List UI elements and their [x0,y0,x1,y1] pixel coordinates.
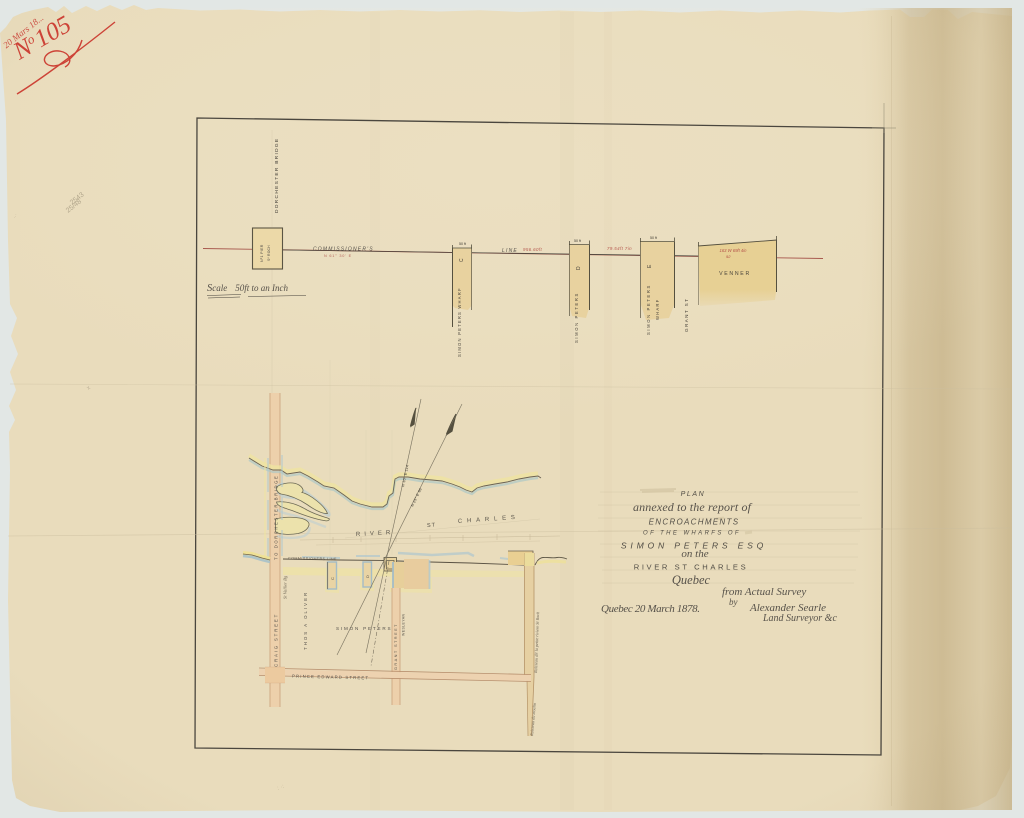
svg-text:St Vallier Bg: St Vallier Bg [283,575,288,599]
svg-text:THOS A OLIVER: THOS A OLIVER [303,591,308,650]
svg-text:PLAN: PLAN [681,491,706,498]
svg-text:Sº ROCH: Sº ROCH [267,245,271,261]
svg-text:ST: ST [427,523,436,529]
svg-text:Land Surveyor &c: Land Surveyor &c [762,613,837,624]
svg-text:WESLEYAN: WESLEYAN [402,614,406,636]
svg-text:N 61° 30' E: N 61° 30' E [324,254,352,258]
svg-text:SIMON PETERS WHARF: SIMON PETERS WHARF [457,287,462,357]
svg-text:WHARF: WHARF [655,299,660,320]
svg-text:GRANT STREET: GRANT STREET [393,623,398,670]
svg-text:Scale50ft to an Inch: Scale50ft to an Inch [207,283,288,294]
svg-text:COMMISSIONERS LINE: COMMISSIONERS LINE [288,557,337,562]
svg-text:79.54ft 7in: 79.54ft 7in [607,246,632,251]
svg-text:VENNER: VENNER [719,271,751,277]
svg-text:on the: on the [681,548,708,560]
svg-text:Quebec 20 March 1878.: Quebec 20 March 1878. [601,603,700,615]
svg-text:50 ft: 50 ft [574,239,581,243]
svg-text:ENCROACHMENTS: ENCROACHMENTS [649,518,740,527]
svg-text:50 ft: 50 ft [650,236,657,240]
svg-text:SIMON PETERS: SIMON PETERS [336,626,392,631]
svg-text:50 ft: 50 ft [459,242,466,246]
svg-text:956.60ft: 956.60ft [523,247,542,252]
svg-text:DORCHESTER BRIDGE: DORCHESTER BRIDGE [274,138,280,213]
svg-text:GRANT ST: GRANT ST [684,298,689,332]
svg-text:COMMISSIONER'S: COMMISSIONER'S [313,247,374,253]
svg-text:SIMON PETERS: SIMON PETERS [646,284,651,335]
svg-text:Quebec: Quebec [672,573,711,587]
svg-text:C: C [330,577,335,580]
svg-text:D: D [365,575,370,578]
svg-text:D: D [576,266,582,270]
svg-text:LINE: LINE [502,248,518,254]
svg-text:92: 92 [726,254,731,259]
svg-text:RIVER ST CHARLES: RIVER ST CHARLES [634,563,748,572]
svg-text:annexed to the report of: annexed to the report of [633,500,753,514]
svg-text:TO DORCHESTER BRIDGE: TO DORCHESTER BRIDGE [274,475,279,560]
svg-text:SIMON PETERS: SIMON PETERS [574,292,579,343]
svg-text:C: C [459,258,465,262]
svg-text:OF THE WHARFS OF: OF THE WHARFS OF [643,531,741,537]
svg-text:by: by [729,597,738,607]
svg-text:Nº1 PIER: Nº1 PIER [260,244,264,262]
svg-text:163 W 69ft 4in: 163 W 69ft 4in [719,248,747,253]
svg-text:CRAIG STREET: CRAIG STREET [274,613,279,667]
